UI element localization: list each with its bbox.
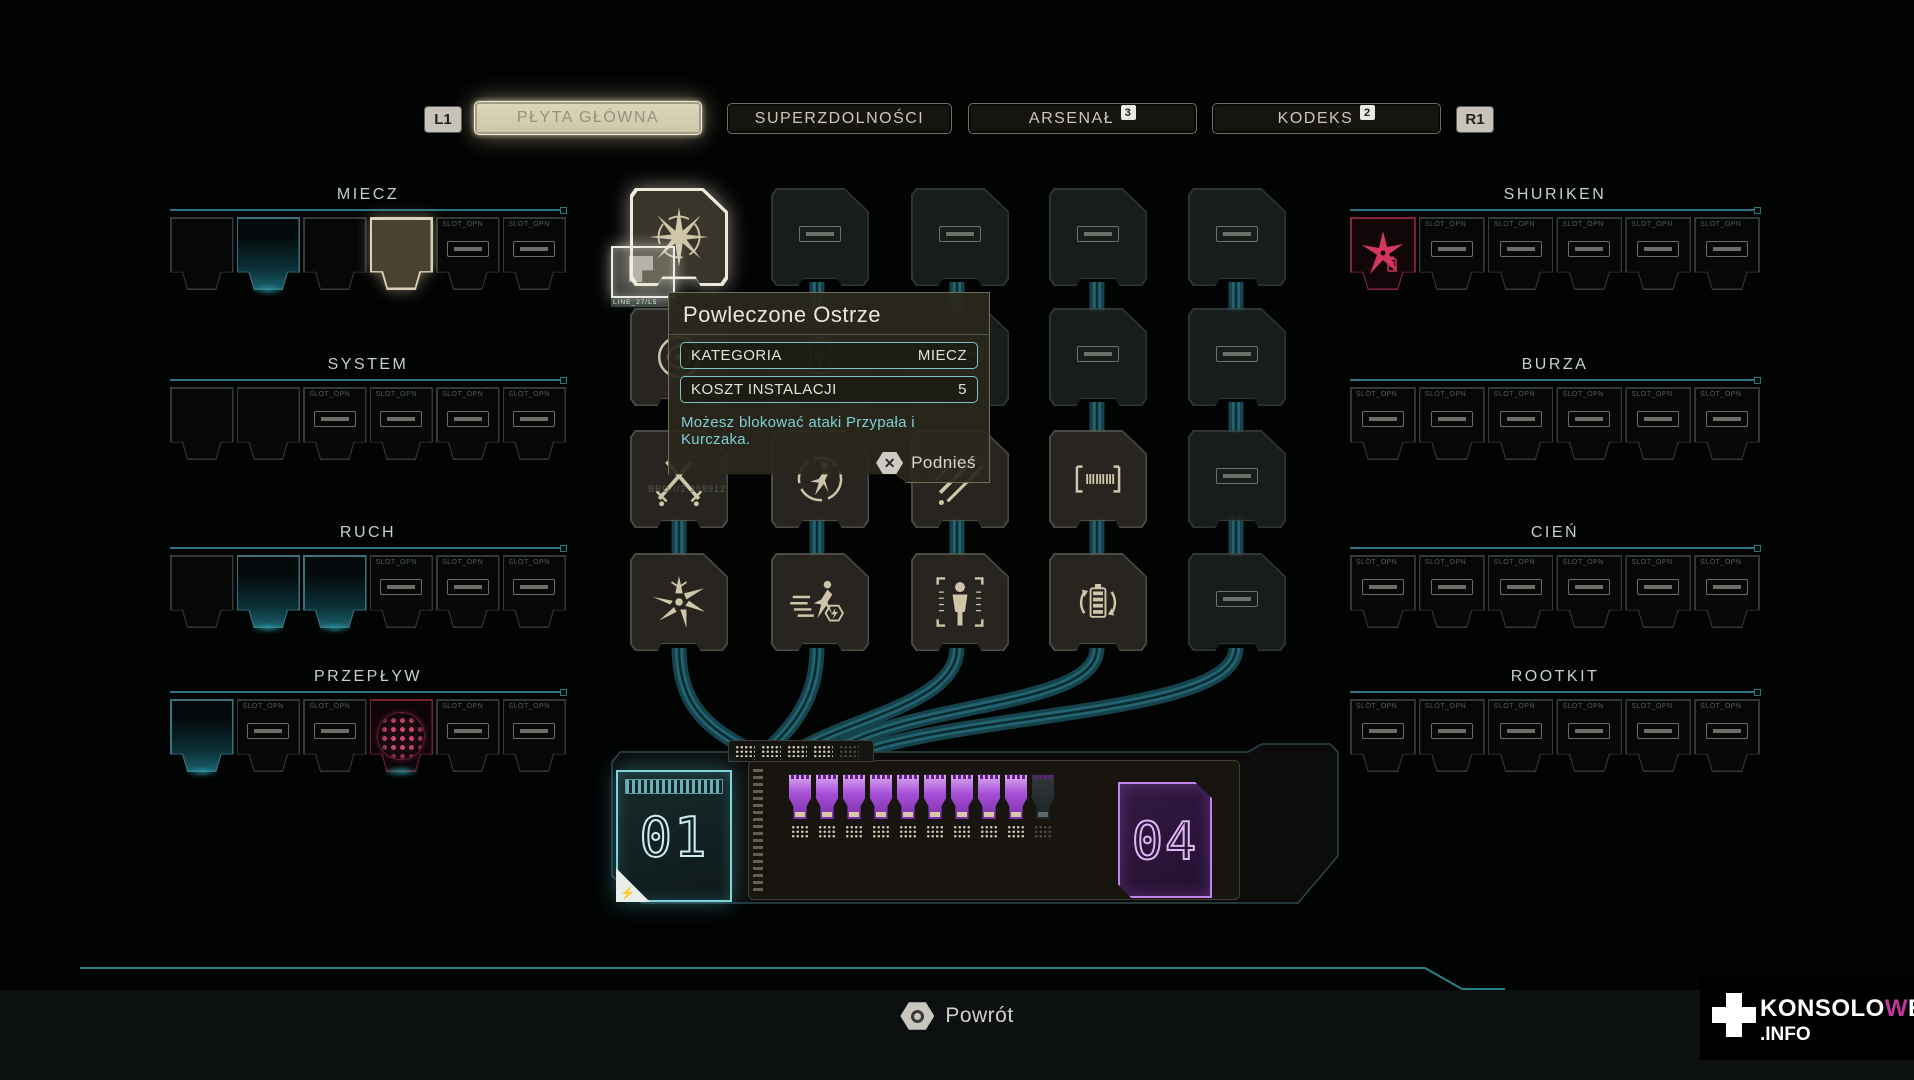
connector-bar-icon xyxy=(1362,579,1404,595)
slot-przeplyw-5[interactable]: SLOT_OPN xyxy=(436,699,500,772)
slot-row-rootkit: SLOT_OPNSLOT_OPNSLOT_OPNSLOT_OPNSLOT_OPN… xyxy=(1350,699,1760,772)
group-underline xyxy=(170,547,566,549)
connector-bar-icon xyxy=(1637,411,1679,427)
lightning-icon: ⚡ xyxy=(620,886,635,900)
slot-open-label: SLOT_OPN xyxy=(1631,221,1672,228)
slot-rootkit-6[interactable]: SLOT_OPN xyxy=(1694,699,1760,772)
fuse-plug xyxy=(978,773,1000,819)
connector-bar-icon xyxy=(1216,226,1258,242)
slot-open-label: SLOT_OPN xyxy=(1700,221,1741,228)
slot-row-burza: SLOT_OPNSLOT_OPNSLOT_OPNSLOT_OPNSLOT_OPN… xyxy=(1350,387,1760,460)
connector-bar-icon xyxy=(380,411,422,427)
connector-bar-icon xyxy=(1568,723,1610,739)
group-title-miecz: MIECZ xyxy=(170,186,566,206)
slot-system-4[interactable]: SLOT_OPN xyxy=(370,387,434,460)
module-04-number: 04 xyxy=(1120,812,1210,872)
connector-bar-icon xyxy=(1500,579,1542,595)
slot-open-label: SLOT_OPN xyxy=(243,703,284,710)
slot-przeplyw-6[interactable]: SLOT_OPN xyxy=(503,699,567,772)
chip-r4-c3-person[interactable] xyxy=(911,553,1009,651)
power-module-01[interactable]: 01 ⚡ xyxy=(616,770,732,902)
connector-bar-icon xyxy=(1431,411,1473,427)
cross-button-icon: ✕ xyxy=(876,451,903,475)
connector-bar-icon xyxy=(1637,723,1679,739)
watermark-accent: W xyxy=(1885,995,1908,1022)
chip-r4-c4-battery[interactable] xyxy=(1049,553,1147,651)
slot-przeplyw-4[interactable] xyxy=(370,699,434,772)
back-hint: Powrót xyxy=(0,1001,1914,1031)
connector-bar-icon xyxy=(1706,723,1748,739)
group-underline xyxy=(1350,547,1760,549)
slot-open-label: SLOT_OPN xyxy=(1494,559,1535,566)
connector-bar-icon xyxy=(1637,241,1679,257)
tab-label: KODEKS xyxy=(1278,110,1354,128)
slot-open-label: SLOT_OPN xyxy=(1425,221,1466,228)
fuse-plug xyxy=(843,773,865,819)
person-icon xyxy=(911,553,1009,651)
shuriken-chip-icon xyxy=(1350,217,1416,290)
connector-bar-icon xyxy=(513,241,555,257)
slot-row-system: SLOT_OPNSLOT_OPNSLOT_OPNSLOT_OPN xyxy=(170,387,566,460)
pin-grid xyxy=(1007,825,1025,838)
connector-bar-icon xyxy=(513,723,555,739)
slot-open-label: SLOT_OPN xyxy=(1700,391,1741,398)
group-title-przeplyw: PRZEPŁYW xyxy=(170,668,566,688)
tab-superzdolnosci[interactable]: SUPERZDOLNOŚCI xyxy=(727,103,952,134)
fuse-plug-empty xyxy=(1032,773,1054,819)
slot-cien-3[interactable]: SLOT_OPN xyxy=(1488,555,1554,628)
slot-open-label: SLOT_OPN xyxy=(1562,221,1603,228)
slot-shuriken-1[interactable] xyxy=(1350,217,1416,290)
slot-open-label: SLOT_OPN xyxy=(442,559,483,566)
tab-kodeks[interactable]: KODEKS2 xyxy=(1212,103,1441,134)
slot-miecz-5[interactable]: SLOT_OPN xyxy=(436,217,500,290)
chip-r1-c4-empty[interactable] xyxy=(1049,188,1147,286)
trace-connector-strip xyxy=(728,740,874,762)
group-underline xyxy=(1350,379,1760,381)
slot-ruch-6[interactable]: SLOT_OPN xyxy=(503,555,567,628)
connector-bar-icon xyxy=(1077,346,1119,362)
connector-bar-icon xyxy=(447,411,489,427)
connector-bar-icon xyxy=(513,411,555,427)
module-01-number: 01 xyxy=(618,806,730,869)
group-cien: CIEŃSLOT_OPNSLOT_OPNSLOT_OPNSLOT_OPNSLOT… xyxy=(1350,524,1760,628)
slot-burza-3[interactable]: SLOT_OPN xyxy=(1488,387,1554,460)
slot-cien-4[interactable]: SLOT_OPN xyxy=(1556,555,1622,628)
watermark-text: KONSOLOWE .INFO xyxy=(1760,995,1914,1046)
chip-r4-c2-dash[interactable] xyxy=(771,553,869,651)
slot-cien-1[interactable]: SLOT_OPN xyxy=(1350,555,1416,628)
slot-przeplyw-3[interactable]: SLOT_OPN xyxy=(303,699,367,772)
tooltip-title: Powleczone Ostrze xyxy=(669,293,989,334)
burst-icon xyxy=(630,553,728,651)
slot-system-5[interactable]: SLOT_OPN xyxy=(436,387,500,460)
pickup-action[interactable]: ✕ Podnieś xyxy=(876,451,976,475)
chip-serial-text: BRD://2.298912 xyxy=(648,484,726,494)
slot-open-label: SLOT_OPN xyxy=(309,391,350,398)
slot-cien-2[interactable]: SLOT_OPN xyxy=(1419,555,1485,628)
slot-system-2[interactable] xyxy=(237,387,301,460)
tab-plyta-glowna[interactable]: PŁYTA GŁÓWNA xyxy=(474,101,702,135)
tooltip-description: Możesz blokować ataki Przypała i Kurczak… xyxy=(681,414,977,448)
slot-open-label: SLOT_OPN xyxy=(1356,559,1397,566)
capacity-module-04[interactable]: 04 xyxy=(1118,782,1212,898)
pin-grid xyxy=(980,825,998,838)
pin-block xyxy=(787,745,807,757)
shoulder-button-r1[interactable]: R1 xyxy=(1457,107,1493,132)
connector-bar-icon xyxy=(314,723,356,739)
chip-r3-c5-empty[interactable] xyxy=(1188,430,1286,528)
slot-open-label: SLOT_OPN xyxy=(1356,391,1397,398)
chip-r3-c4-memory[interactable] xyxy=(1049,430,1147,528)
motherboard-screen: { "header": { "shoulder_left": "L1", "sh… xyxy=(0,0,1914,1080)
slot-miecz-4[interactable] xyxy=(370,217,434,290)
slot-rootkit-3[interactable]: SLOT_OPN xyxy=(1488,699,1554,772)
slot-open-label: SLOT_OPN xyxy=(1631,391,1672,398)
connector-bar-icon xyxy=(314,411,356,427)
group-title-system: SYSTEM xyxy=(170,356,566,376)
connector-bar-icon xyxy=(1568,241,1610,257)
watermark-pre: KONSOLO xyxy=(1760,995,1885,1022)
slot-burza-4[interactable]: SLOT_OPN xyxy=(1556,387,1622,460)
connector-bar-icon xyxy=(1500,411,1542,427)
slot-rootkit-5[interactable]: SLOT_OPN xyxy=(1625,699,1691,772)
connector-bar-icon xyxy=(1568,579,1610,595)
connector-bar-icon xyxy=(1431,579,1473,595)
slot-burza-5[interactable]: SLOT_OPN xyxy=(1625,387,1691,460)
slot-open-label: SLOT_OPN xyxy=(1425,559,1466,566)
slot-open-label: SLOT_OPN xyxy=(509,221,550,228)
fuse-plug xyxy=(897,773,919,819)
shoulder-button-l1[interactable]: L1 xyxy=(425,107,461,132)
pin-grid xyxy=(1034,825,1052,838)
connector-bar-icon xyxy=(1706,241,1748,257)
slot-miecz-2[interactable] xyxy=(237,217,301,290)
slot-burza-2[interactable]: SLOT_OPN xyxy=(1419,387,1485,460)
memory-icon xyxy=(1049,430,1147,528)
back-button[interactable]: Powrót xyxy=(900,1001,1013,1031)
connector-bar-icon xyxy=(799,226,841,242)
connector-bar-icon xyxy=(1637,579,1679,595)
slot-shuriken-5[interactable]: SLOT_OPN xyxy=(1625,217,1691,290)
group-ruch: RUCHSLOT_OPNSLOT_OPNSLOT_OPN xyxy=(170,524,566,628)
pickup-label: Podnieś xyxy=(911,453,976,473)
pin-block xyxy=(735,745,755,757)
slot-system-3[interactable]: SLOT_OPN xyxy=(303,387,367,460)
connector-bar-icon xyxy=(1077,226,1119,242)
slot-open-label: SLOT_OPN xyxy=(1425,703,1466,710)
slot-ruch-1[interactable] xyxy=(170,555,234,628)
slot-miecz-6[interactable]: SLOT_OPN xyxy=(503,217,567,290)
tab-badge: 2 xyxy=(1360,105,1375,120)
slot-przeplyw-2[interactable]: SLOT_OPN xyxy=(237,699,301,772)
fuse-plug xyxy=(1005,773,1027,819)
watermark: KONSOLOWE .INFO xyxy=(1700,975,1914,1060)
pin-grid xyxy=(899,825,917,838)
slot-ruch-5[interactable]: SLOT_OPN xyxy=(436,555,500,628)
dash-icon xyxy=(771,553,869,651)
group-underline xyxy=(1350,691,1760,693)
fuse-plug xyxy=(870,773,892,819)
pin-grid xyxy=(791,825,809,838)
core-sphere-chip-icon xyxy=(370,699,434,772)
chip-r4-c1-burst[interactable] xyxy=(630,553,728,651)
connector-bar-icon xyxy=(1431,241,1473,257)
group-underline xyxy=(170,691,566,693)
slot-shuriken-2[interactable]: SLOT_OPN xyxy=(1419,217,1485,290)
group-burza: BURZASLOT_OPNSLOT_OPNSLOT_OPNSLOT_OPNSLO… xyxy=(1350,356,1760,460)
slot-open-label: SLOT_OPN xyxy=(1494,703,1535,710)
slot-open-label: SLOT_OPN xyxy=(1425,391,1466,398)
slot-burza-1[interactable]: SLOT_OPN xyxy=(1350,387,1416,460)
watermark-suffix: .INFO xyxy=(1760,1024,1914,1046)
cross-logo-icon xyxy=(1712,993,1756,1037)
connector-bar-icon xyxy=(447,723,489,739)
slot-open-label: SLOT_OPN xyxy=(509,703,550,710)
slot-cien-6[interactable]: SLOT_OPN xyxy=(1694,555,1760,628)
connector-bar-icon xyxy=(1362,411,1404,427)
tooltip-cost-value: 5 xyxy=(958,381,967,398)
slot-open-label: SLOT_OPN xyxy=(1631,703,1672,710)
group-shuriken: SHURIKEN SLOT_OPNSLOT_OPNSLOT_OPNSLOT_OP… xyxy=(1350,186,1760,290)
slot-ruch-2[interactable] xyxy=(237,555,301,628)
tooltip-category-label: KATEGORIA xyxy=(691,347,782,364)
pin-block xyxy=(839,745,859,757)
group-underline xyxy=(170,209,566,211)
item-tooltip: Powleczone Ostrze KATEGORIA MIECZ KOSZT … xyxy=(668,292,990,483)
connector-bar-icon xyxy=(447,579,489,595)
group-system: SYSTEMSLOT_OPNSLOT_OPNSLOT_OPNSLOT_OPN xyxy=(170,356,566,460)
watermark-post: E xyxy=(1908,995,1914,1022)
group-title-burza: BURZA xyxy=(1350,356,1760,376)
group-title-rootkit: ROOTKIT xyxy=(1350,668,1760,688)
slot-open-label: SLOT_OPN xyxy=(309,703,350,710)
slot-shuriken-3[interactable]: SLOT_OPN xyxy=(1488,217,1554,290)
group-title-ruch: RUCH xyxy=(170,524,566,544)
board-pin-column xyxy=(753,769,763,891)
slot-open-label: SLOT_OPN xyxy=(1562,559,1603,566)
slot-system-6[interactable]: SLOT_OPN xyxy=(503,387,567,460)
slot-open-label: SLOT_OPN xyxy=(1700,703,1741,710)
connector-bar-icon xyxy=(1216,468,1258,484)
chip-r1-c5-empty[interactable] xyxy=(1188,188,1286,286)
connector-bar-icon xyxy=(1500,241,1542,257)
group-przeplyw: PRZEPŁYWSLOT_OPNSLOT_OPNSLOT_OPNSLOT_OPN xyxy=(170,668,566,772)
pin-grid xyxy=(953,825,971,838)
pin-grid xyxy=(845,825,863,838)
fuse-plug xyxy=(816,773,838,819)
slot-burza-6[interactable]: SLOT_OPN xyxy=(1694,387,1760,460)
group-underline xyxy=(1350,209,1760,211)
slot-open-label: SLOT_OPN xyxy=(1494,221,1535,228)
slot-open-label: SLOT_OPN xyxy=(442,703,483,710)
slot-row-shuriken: SLOT_OPNSLOT_OPNSLOT_OPNSLOT_OPNSLOT_OPN xyxy=(1350,217,1760,290)
slot-open-label: SLOT_OPN xyxy=(1356,703,1397,710)
group-rootkit: ROOTKITSLOT_OPNSLOT_OPNSLOT_OPNSLOT_OPNS… xyxy=(1350,668,1760,772)
connector-bar-icon xyxy=(1500,723,1542,739)
tab-label: SUPERZDOLNOŚCI xyxy=(755,110,924,128)
fuse-plug xyxy=(951,773,973,819)
slot-cien-5[interactable]: SLOT_OPN xyxy=(1625,555,1691,628)
connector-bar-icon xyxy=(1216,591,1258,607)
slot-open-label: SLOT_OPN xyxy=(376,391,417,398)
slot-open-label: SLOT_OPN xyxy=(1562,703,1603,710)
slot-shuriken-4[interactable]: SLOT_OPN xyxy=(1556,217,1622,290)
pin-grid xyxy=(872,825,890,838)
back-label: Powrót xyxy=(945,1004,1013,1028)
pin-block xyxy=(761,745,781,757)
circle-button-icon xyxy=(900,1001,934,1031)
tab-label: PŁYTA GŁÓWNA xyxy=(517,109,659,127)
held-chip-shape xyxy=(629,256,653,282)
slot-rootkit-2[interactable]: SLOT_OPN xyxy=(1419,699,1485,772)
battery-icon xyxy=(1049,553,1147,651)
connector-bar-icon xyxy=(939,226,981,242)
tooltip-category-row: KATEGORIA MIECZ xyxy=(680,342,978,369)
tab-label: ARSENAŁ xyxy=(1029,110,1114,128)
tab-badge: 3 xyxy=(1121,105,1136,120)
connector-bar-icon xyxy=(1706,579,1748,595)
slot-open-label: SLOT_OPN xyxy=(442,391,483,398)
slot-przeplyw-1[interactable] xyxy=(170,699,234,772)
connector-bar-icon xyxy=(1431,723,1473,739)
slot-ruch-3[interactable] xyxy=(303,555,367,628)
slot-open-label: SLOT_OPN xyxy=(1700,559,1741,566)
chip-r2-c5-empty[interactable] xyxy=(1188,308,1286,406)
held-chip-micro-label: LINE_27/L5 xyxy=(611,298,677,307)
held-chip[interactable]: LINE_27/L5 xyxy=(611,246,675,298)
connector-bar-icon xyxy=(1362,723,1404,739)
module-01-header-strip xyxy=(625,779,723,794)
slot-open-label: SLOT_OPN xyxy=(1562,391,1603,398)
tooltip-cost-label: KOSZT INSTALACJI xyxy=(691,381,837,398)
tooltip-cost-row: KOSZT INSTALACJI 5 xyxy=(680,376,978,403)
slot-row-ruch: SLOT_OPNSLOT_OPNSLOT_OPN xyxy=(170,555,566,628)
module-01-corner: ⚡ xyxy=(616,868,650,902)
slot-miecz-3[interactable] xyxy=(303,217,367,290)
chip-r1-c2-empty[interactable] xyxy=(771,188,869,286)
group-title-cien: CIEŃ xyxy=(1350,524,1760,544)
group-title-shuriken: SHURIKEN xyxy=(1350,186,1760,206)
slot-open-label: SLOT_OPN xyxy=(1494,391,1535,398)
chip-r1-c3-empty[interactable] xyxy=(911,188,1009,286)
chip-r2-c4-empty[interactable] xyxy=(1049,308,1147,406)
tab-arsenal[interactable]: ARSENAŁ3 xyxy=(968,103,1197,134)
connector-bar-icon xyxy=(380,579,422,595)
slot-row-przeplyw: SLOT_OPNSLOT_OPNSLOT_OPNSLOT_OPN xyxy=(170,699,566,772)
slot-ruch-4[interactable]: SLOT_OPN xyxy=(370,555,434,628)
fuse-plug xyxy=(789,773,811,819)
chip-r4-c5-empty[interactable] xyxy=(1188,553,1286,651)
group-underline xyxy=(170,379,566,381)
slot-open-label: SLOT_OPN xyxy=(509,559,550,566)
connector-bar-icon xyxy=(1568,411,1610,427)
slot-rootkit-4[interactable]: SLOT_OPN xyxy=(1556,699,1622,772)
slot-rootkit-1[interactable]: SLOT_OPN xyxy=(1350,699,1416,772)
pin-block xyxy=(813,745,833,757)
slot-row-cien: SLOT_OPNSLOT_OPNSLOT_OPNSLOT_OPNSLOT_OPN… xyxy=(1350,555,1760,628)
tooltip-category-value: MIECZ xyxy=(918,347,967,364)
fuse-plug xyxy=(924,773,946,819)
slot-row-miecz: SLOT_OPNSLOT_OPN xyxy=(170,217,566,290)
slot-open-label: SLOT_OPN xyxy=(509,391,550,398)
connector-bar-icon xyxy=(247,723,289,739)
connector-bar-icon xyxy=(1706,411,1748,427)
slot-open-label: SLOT_OPN xyxy=(376,559,417,566)
slot-open-label: SLOT_OPN xyxy=(1631,559,1672,566)
connector-bar-icon xyxy=(1216,346,1258,362)
slot-shuriken-6[interactable]: SLOT_OPN xyxy=(1694,217,1760,290)
slot-system-1[interactable] xyxy=(170,387,234,460)
connector-bar-icon xyxy=(513,579,555,595)
pin-grid xyxy=(818,825,836,838)
slot-miecz-1[interactable] xyxy=(170,217,234,290)
group-miecz: MIECZSLOT_OPNSLOT_OPN xyxy=(170,186,566,290)
header-tabs: L1 PŁYTA GŁÓWNASUPERZDOLNOŚCIARSENAŁ3KOD… xyxy=(0,0,1914,150)
tooltip-divider xyxy=(669,334,989,335)
pin-grid xyxy=(926,825,944,838)
connector-bar-icon xyxy=(447,241,489,257)
slot-open-label: SLOT_OPN xyxy=(442,221,483,228)
